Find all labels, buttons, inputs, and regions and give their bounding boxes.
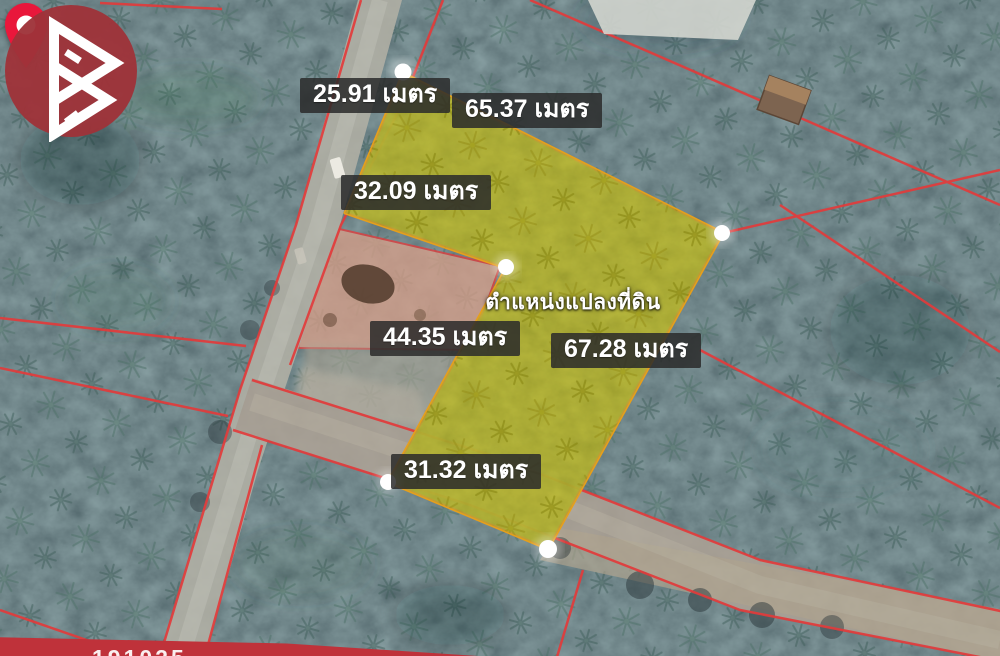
measurement-label-67-28: 67.28 เมตร: [551, 333, 701, 368]
soil-speck: [414, 309, 426, 321]
measurement-label-32-09: 32.09 เมตร: [341, 175, 491, 210]
measurement-label-65-37: 65.37 เมตร: [452, 93, 602, 128]
pin-caption: ตำแหน่งแปลงที่ดิน: [448, 286, 698, 319]
listing-id-partial-text: 191025: [92, 645, 187, 656]
land-listing-map-image: 25.91 เมตร 65.37 เมตร 32.09 เมตร 44.35 เ…: [0, 0, 1000, 656]
vertex-dot: [493, 254, 519, 280]
vertex-dot: [534, 535, 562, 563]
soil-speck: [323, 313, 337, 327]
vertex-dot: [709, 220, 735, 246]
white-building: [588, 0, 756, 40]
brand-b-logo-icon: [0, 0, 142, 142]
measurement-label-31-32: 31.32 เมตร: [391, 454, 541, 489]
measurement-label-44-35: 44.35 เมตร: [370, 321, 520, 356]
measurement-label-25-91: 25.91 เมตร: [300, 78, 450, 113]
